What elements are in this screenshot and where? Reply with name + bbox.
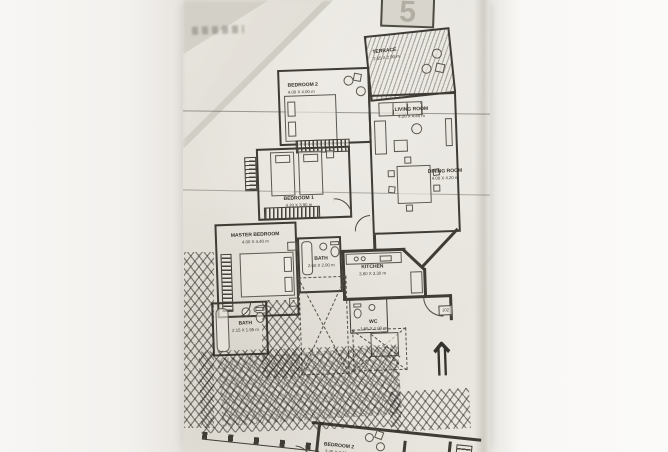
sink [319, 242, 327, 250]
chair [364, 433, 374, 443]
toilet-tank [353, 303, 361, 307]
sink [354, 256, 359, 261]
bath2-room: BATH 2.15 X 1.95 m [211, 301, 269, 357]
living-dining-room: LIVING ROOM 4.20 X 4.40 m DINING ROOM 4.… [368, 92, 461, 235]
dining-chair [433, 184, 440, 191]
side-table [374, 430, 384, 440]
dining-chair [388, 186, 396, 194]
pillow [275, 155, 290, 164]
bedroom2-room: BEDROOM 2 4.00 X 4.00 m [277, 67, 372, 146]
tv-cabinet [445, 118, 453, 146]
chair [356, 86, 366, 96]
master-bath-label: BATH 2.60 X 2.00 m [308, 256, 335, 268]
hall-slant-wall [421, 228, 458, 268]
pillow [303, 154, 318, 163]
kitchen-label: KITCHEN 3.80 X 3.30 m [359, 264, 386, 276]
bathtub [215, 308, 230, 352]
door-arc [354, 215, 371, 232]
master-bedroom-label: MASTER BEDROOM 4.00 X 4.40 m [231, 232, 280, 245]
bed [284, 94, 338, 142]
lower-unit-wall [399, 441, 407, 452]
dining-room-label: DINING ROOM 4.00 X 4.20 m [428, 169, 463, 181]
sheet-number-badge: 5 [380, 0, 436, 28]
sink [368, 304, 375, 311]
bed [270, 152, 296, 197]
toilet [353, 308, 361, 318]
hall-wall [373, 235, 376, 251]
nightstand [287, 242, 296, 251]
scanned-floor-plan-photo: 5 TERRACE 2.55 X 2.90 m LIVING ROOM 4.20… [0, 0, 668, 452]
bath2-label: BATH 2.15 X 1.95 m [232, 321, 259, 333]
pillow [288, 121, 297, 136]
dining-table [396, 165, 431, 204]
kitchen-counter [410, 271, 423, 293]
terrace-label: TERRACE 2.55 X 2.90 m [372, 48, 400, 62]
wardrobe [451, 444, 472, 452]
coffee-table [411, 123, 422, 134]
terrace-chair [431, 48, 442, 59]
dining-chair [388, 170, 395, 177]
stove [380, 255, 392, 261]
chair [376, 442, 386, 452]
wardrobe [244, 157, 257, 191]
terrace-chair [421, 63, 432, 74]
living-room-label: LIVING ROOM 4.20 X 4.40 m [394, 107, 428, 119]
terrace-room: TERRACE 2.55 X 2.90 m [364, 27, 456, 102]
pillow [284, 277, 293, 292]
pillow [284, 257, 293, 272]
dining-chair [404, 156, 411, 163]
bed [239, 252, 295, 298]
toilet-tank [330, 241, 339, 245]
lower-unit-wall [443, 441, 451, 452]
unit-number-tag: 102 [438, 305, 452, 315]
lower-bedroom2-label: BEDROOM 2 3.45 X 3.80 m [323, 442, 354, 452]
sofa [374, 120, 387, 154]
sheet-number: 5 [399, 0, 417, 26]
crosshatch-scribble-dark [218, 346, 402, 426]
pillow [287, 101, 296, 116]
bed [298, 151, 324, 196]
unit-number: 102 [442, 307, 449, 312]
terrace-table [435, 63, 446, 74]
side-table [353, 73, 362, 82]
wardrobe [264, 206, 320, 220]
north-arrow-icon: ⇑ [424, 333, 454, 389]
kitchen-wall [423, 268, 427, 297]
nightstand [326, 150, 334, 158]
dining-chair [406, 204, 413, 211]
armchair [394, 140, 408, 152]
bedroom2-label: BEDROOM 2 4.00 X 4.00 m [288, 83, 319, 95]
sink [361, 256, 366, 261]
